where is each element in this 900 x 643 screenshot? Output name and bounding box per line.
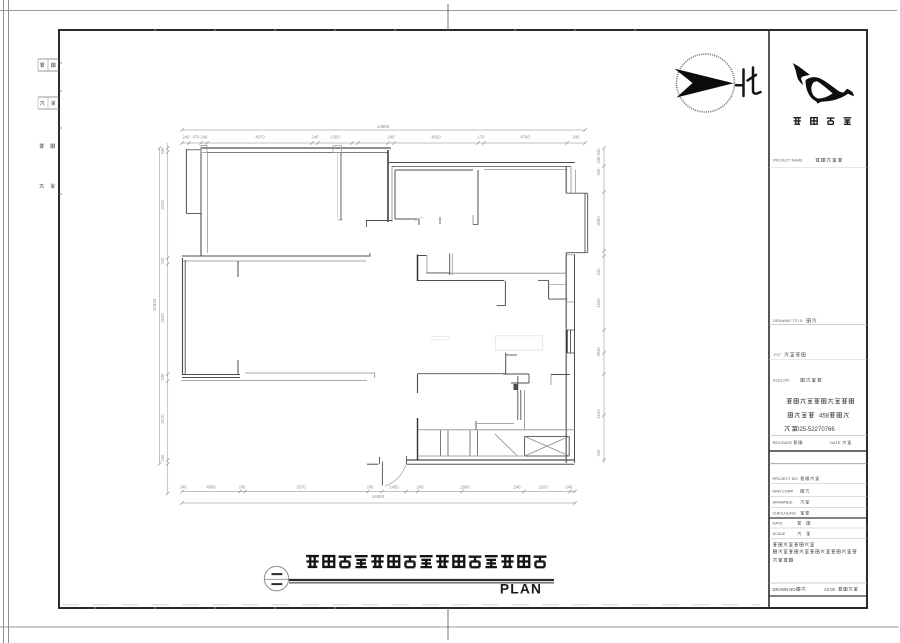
svg-text:DRAWNED: DRAWNED [773,500,793,505]
svg-text:10340: 10340 [152,298,157,311]
svg-text:240: 240 [566,485,574,490]
svg-text:DRAWING TITLE:: DRAWING TITLE: [773,319,804,323]
svg-text:3370: 3370 [296,485,306,490]
svg-text:240: 240 [239,485,247,490]
svg-text:4070: 4070 [255,135,265,140]
svg-text:240: 240 [596,268,601,276]
svg-text:14850: 14850 [372,494,385,499]
svg-text:240: 240 [312,135,320,140]
svg-text:DRAWN NO: DRAWN NO [773,587,797,592]
svg-text:DRN CORP: DRN CORP [773,489,794,494]
svg-text:470: 470 [193,135,201,140]
svg-text:1300: 1300 [330,135,340,140]
svg-text:240: 240 [573,135,581,140]
svg-text:PROJECT NO: PROJECT NO [773,476,798,481]
svg-text:240: 240 [160,147,165,155]
svg-text:2640: 2640 [160,313,165,323]
svg-text:14850: 14850 [377,124,390,129]
svg-text:PROJECT NAME: PROJECT NAME [773,159,803,163]
svg-text:430: 430 [596,156,601,164]
svg-text:2200: 2200 [538,485,548,490]
svg-text:240: 240 [180,485,188,490]
svg-text:025-52270766: 025-52270766 [796,427,835,433]
svg-text:A3 00: A3 00 [824,587,836,592]
svg-text:240: 240 [201,135,209,140]
svg-text:3470: 3470 [160,414,165,424]
svg-text:240: 240 [514,485,522,490]
svg-text:458: 458 [819,413,830,419]
svg-text:1540: 1540 [596,298,601,308]
svg-text:240: 240 [596,168,601,176]
svg-text:3420: 3420 [160,200,165,210]
svg-text:A3(1):(W): A3(1):(W) [773,379,790,383]
svg-text:1480: 1480 [389,485,399,490]
svg-text:240: 240 [388,135,396,140]
svg-text:240: 240 [160,454,165,462]
svg-text:-PLT: -PLT [773,353,782,357]
svg-text:240: 240 [596,148,601,156]
svg-text:DATE: DATE [773,521,783,526]
svg-text:4020: 4020 [431,135,441,140]
svg-text:4760: 4760 [520,135,530,140]
svg-text:REV/DATE: REV/DATE [773,440,793,445]
svg-text:240: 240 [160,257,165,265]
svg-text:240: 240 [417,485,425,490]
svg-text:SCALE: SCALE [773,531,786,536]
svg-text:4060: 4060 [206,485,216,490]
svg-text:4150: 4150 [596,409,601,419]
svg-text:170: 170 [478,135,486,140]
svg-text:240: 240 [160,373,165,381]
svg-text:DATE: DATE [830,440,841,445]
svg-text:CHK/LHL/NO: CHK/LHL/NO [773,511,796,516]
svg-text:2840: 2840 [596,347,601,357]
svg-text:240: 240 [596,449,601,457]
svg-text:PLAN: PLAN [500,582,542,597]
svg-text:3090: 3090 [596,216,601,226]
svg-text:2990: 2990 [460,485,470,490]
svg-text:240: 240 [183,135,191,140]
svg-text:240: 240 [367,485,375,490]
